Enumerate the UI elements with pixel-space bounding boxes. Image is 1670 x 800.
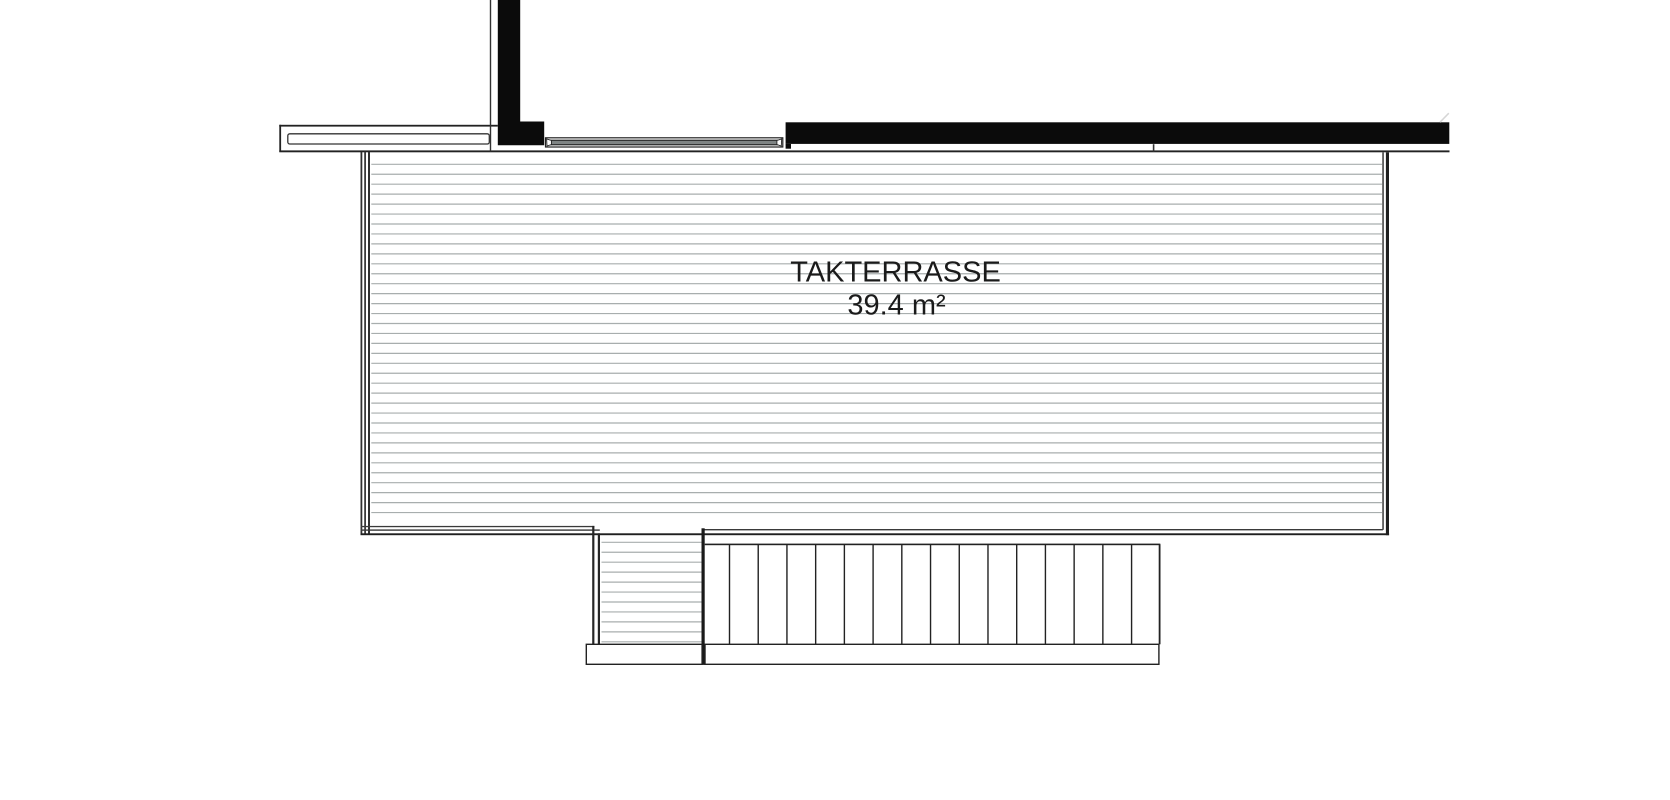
svg-text:TAKTERRASSE: TAKTERRASSE (790, 257, 1001, 289)
svg-text:39.4 m²: 39.4 m² (847, 290, 946, 322)
